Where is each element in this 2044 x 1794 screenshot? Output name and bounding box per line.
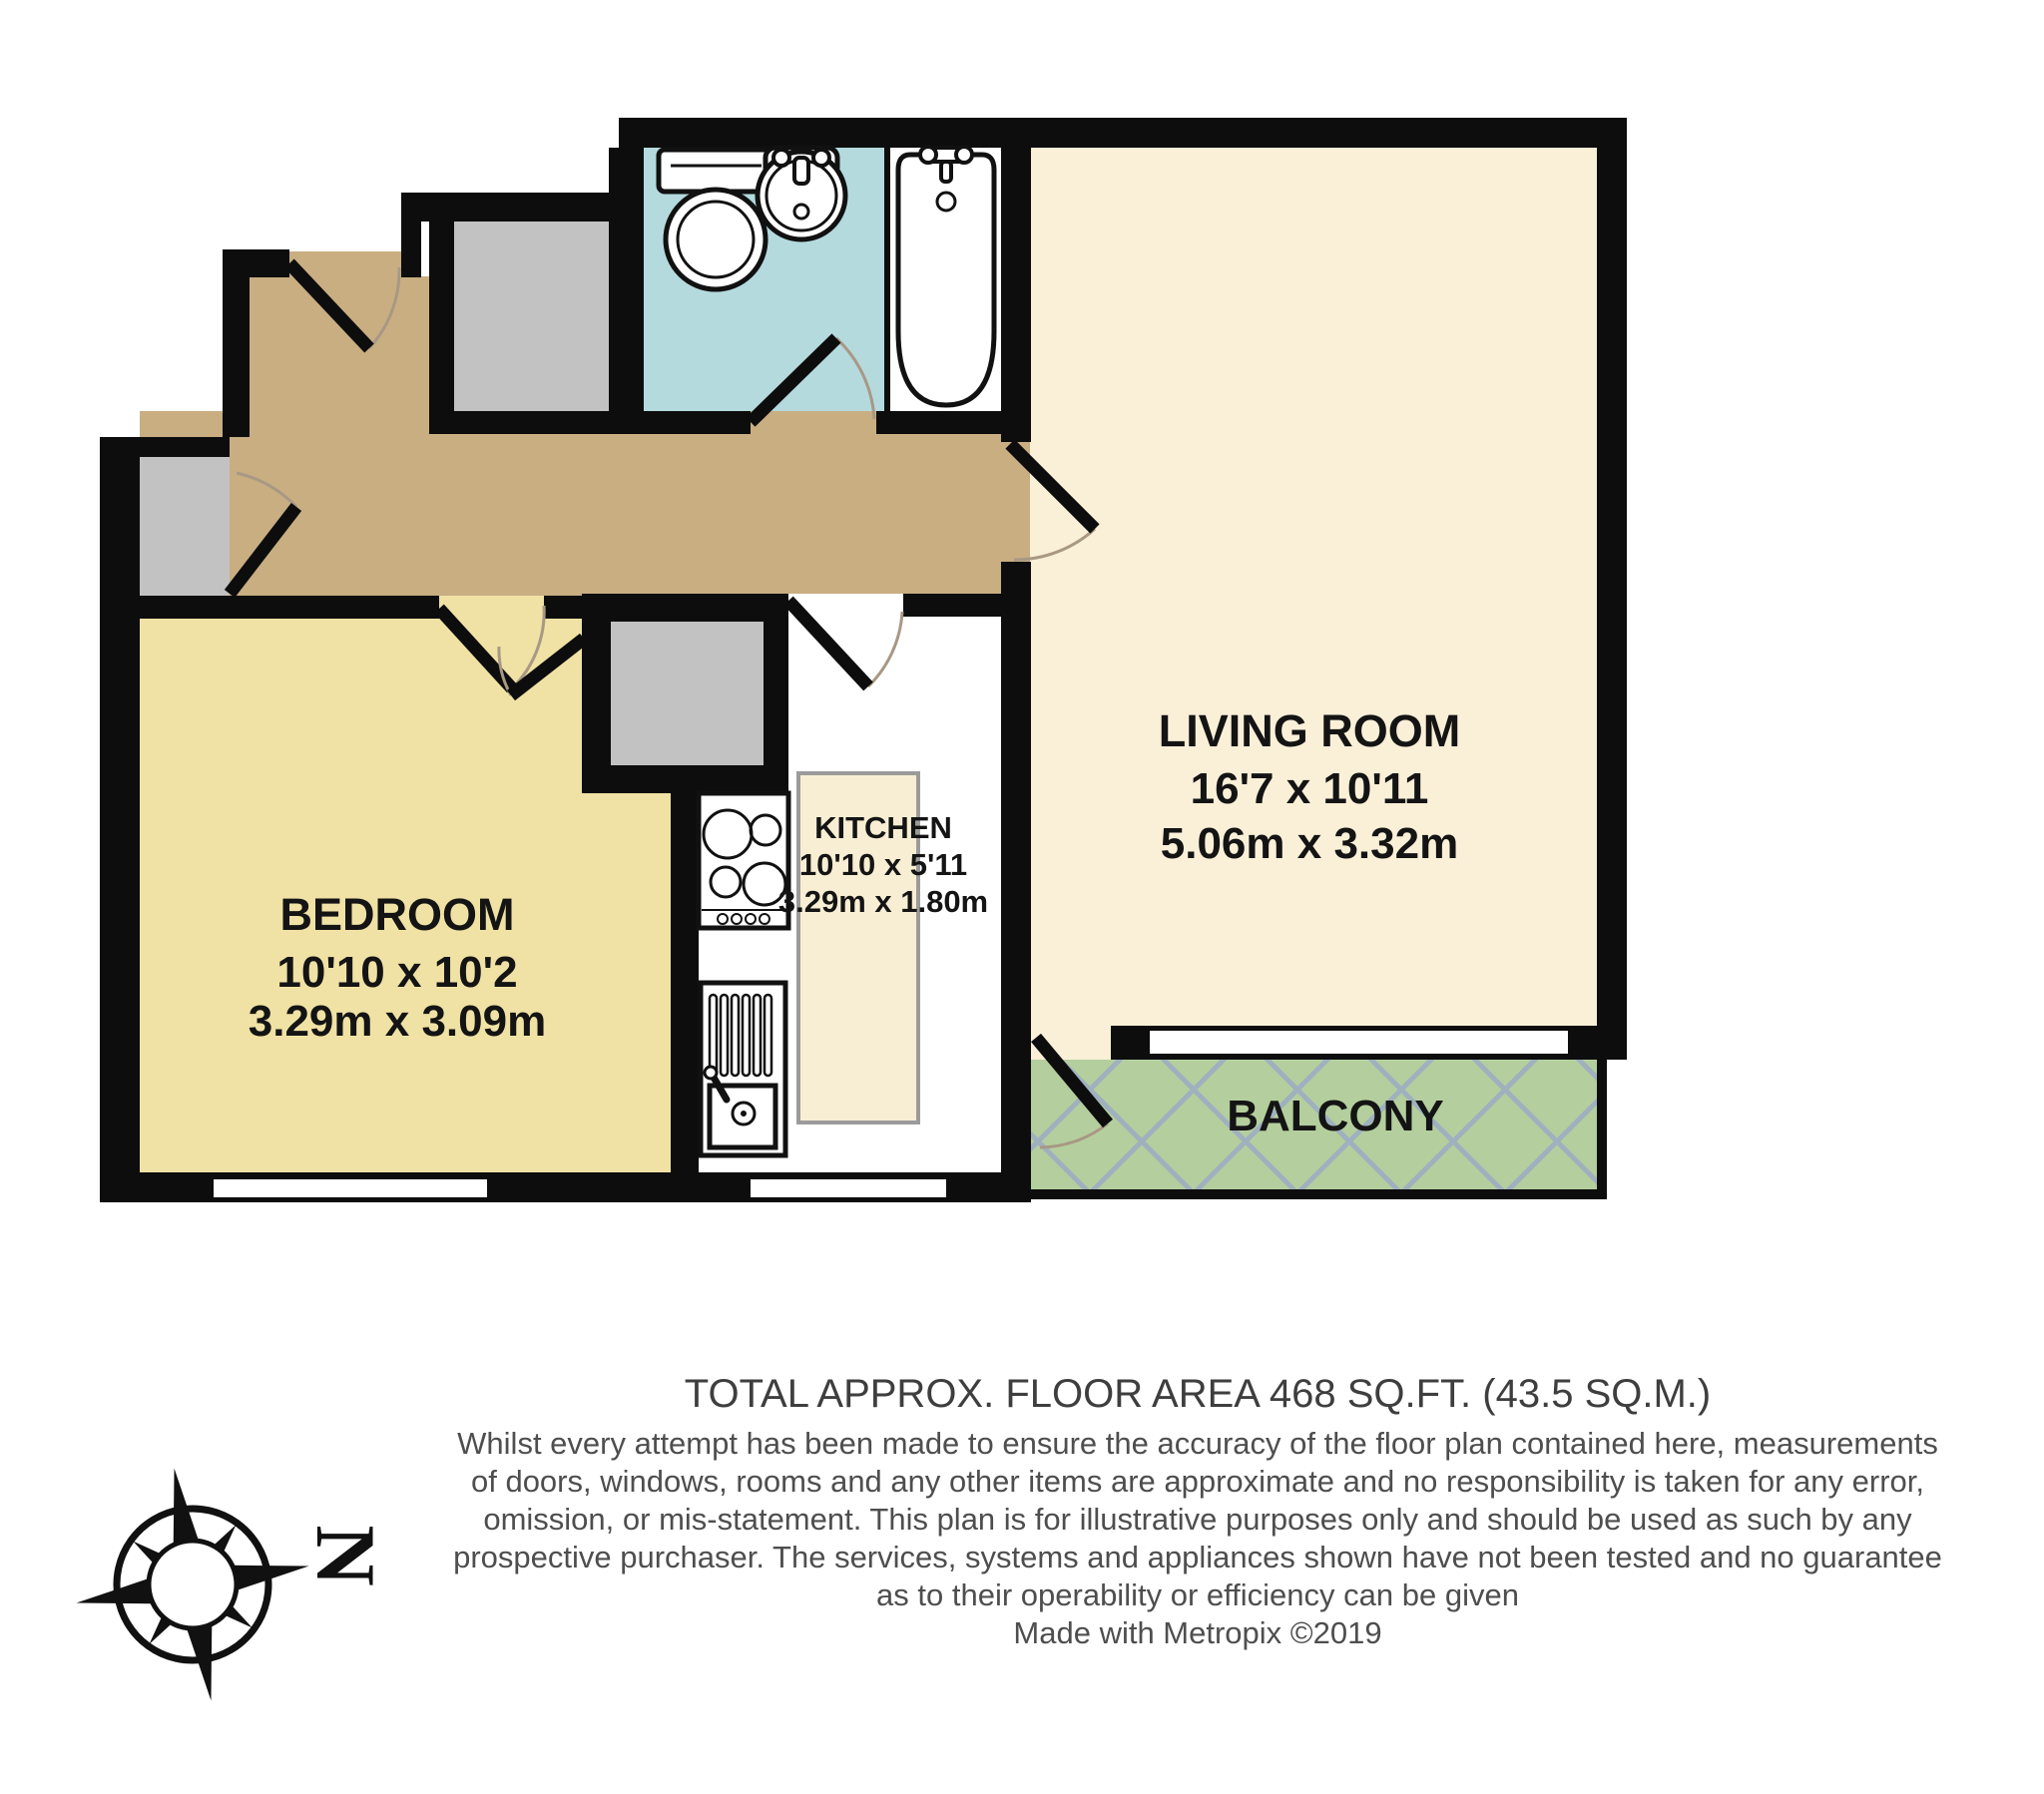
wall-segment [876,411,1003,434]
credit-line: Made with Metropix ©2019 [354,1614,2041,1652]
drainboard-bar [710,995,717,1076]
disclaimer-line: omission, or mis-statement. This plan is… [354,1501,2041,1539]
closet-floor [611,622,764,765]
wall-segment [429,411,751,434]
basin-tap-handle [773,150,789,166]
kitchen-label: KITCHEN [814,810,952,845]
bedroom-dimensions-imperial: 10'10 x 10'2 [276,948,517,997]
closet-floor [454,222,609,411]
drainboard-bar [732,995,739,1076]
bedroom-dimensions-metric: 3.29m x 3.09m [249,997,546,1046]
drainboard-bar [721,995,728,1076]
wall-segment [419,193,619,222]
drainboard-bar [754,995,761,1076]
disclaimer-line: of doors, windows, rooms and any other i… [354,1463,2041,1501]
living-room-dimensions-metric: 5.06m x 3.32m [1161,819,1458,868]
kitchen-sink-drain-dot [741,1111,747,1117]
bathtub-alcove-divider [884,148,890,411]
disclaimer-line: as to their operability or efficiency ca… [354,1576,2041,1614]
hallway-floor [140,411,1003,596]
wall-segment [429,222,454,411]
wall-segment [223,249,250,437]
entry-hall-floor [250,276,429,434]
stove-icon [699,793,788,928]
wall-segment [544,596,582,619]
bedroom-window [212,1177,489,1199]
living-room-window [1148,1029,1570,1056]
living-room-label: LIVING ROOM [1159,705,1461,756]
living-room-floor [1030,148,1597,1026]
kitchen-dimensions-imperial: 10'10 x 5'11 [799,847,967,882]
kitchen-sink-basin [710,1086,775,1147]
wall-segment [401,193,421,277]
kitchen-dimensions-metric: 3.29m x 1.80m [778,884,988,919]
bathtub-tap-handle [956,147,972,163]
wall-segment [671,765,699,1172]
balcony-railing [1597,1060,1607,1199]
toilet-bowl-icon [666,190,766,289]
drainboard-bar [743,995,750,1076]
wall-segment [609,148,644,434]
closet-floor [140,457,230,596]
compass-rose-icon: N [58,1450,392,1719]
disclaimer-line: prospective purchaser. The services, sys… [354,1539,2041,1576]
wall-segment [1001,562,1031,1202]
wall-segment [1001,118,1031,442]
disclaimer-line: Whilst every attempt has been made to en… [354,1425,2041,1463]
wall-segment [619,118,1627,148]
living-room-dimensions-imperial: 16'7 x 10'11 [1191,764,1429,813]
basin-tap-handle [813,150,829,166]
wall-segment [1597,118,1627,1060]
wall-segment [100,596,439,619]
compass-hub [143,1535,244,1635]
bathtub-tap-handle [920,147,936,163]
bathtub-tap-stem [941,162,951,182]
balcony-label: BALCONY [1227,1092,1444,1140]
wall-segment [100,437,140,1202]
floor-area-title: TOTAL APPROX. FLOOR AREA 468 SQ.FT. (43.… [354,1369,2041,1419]
wall-segment [903,594,1003,617]
bedroom-label: BEDROOM [280,889,515,940]
kitchen-window [749,1177,948,1199]
balcony-railing [1030,1189,1607,1199]
footer: TOTAL APPROX. FLOOR AREA 468 SQ.FT. (43.… [354,1369,2041,1652]
basin-tap [794,158,808,184]
drainboard-bar [765,995,771,1076]
kitchen-sink-tap-base [705,1067,717,1079]
